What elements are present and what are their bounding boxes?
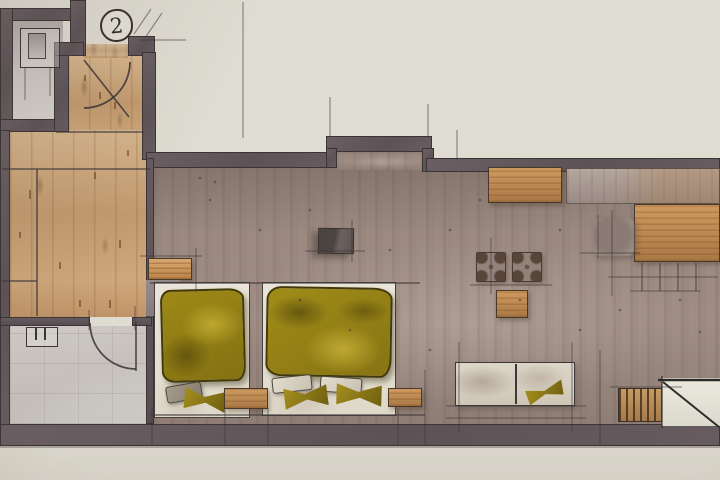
wc-left-wall <box>0 8 13 132</box>
pouf-right <box>512 252 542 282</box>
terrace-door-panel <box>662 378 720 426</box>
bathroom-wall-right <box>132 317 152 326</box>
nightstand-center <box>224 388 268 409</box>
desk-table <box>634 204 720 262</box>
side-table <box>318 228 354 255</box>
niche-top-wall <box>326 136 432 152</box>
desk-chair <box>594 218 634 256</box>
shower-fixture-inner <box>28 33 46 59</box>
room-number-text: 2 <box>109 13 124 38</box>
side-block <box>496 290 528 318</box>
bed-single-duvet <box>160 288 246 383</box>
entry-right-wall <box>142 52 156 160</box>
niche-left-jog <box>326 148 337 168</box>
toilet-fixture <box>26 327 58 347</box>
toilet-fixture-line <box>35 327 37 340</box>
wardrobe-counter <box>566 168 720 204</box>
bottom-wall <box>0 424 720 446</box>
pouf-left <box>476 252 506 282</box>
bed-double-duvet <box>265 286 393 378</box>
toilet-fixture-line <box>44 327 46 340</box>
dressing-room-floor <box>10 130 146 317</box>
nightstand-right <box>388 388 422 407</box>
bathroom-wall-left <box>0 317 90 326</box>
main-top-wall-left <box>146 152 334 168</box>
dresser-north-wall <box>488 167 562 203</box>
sofa-cushion-divider <box>515 364 517 404</box>
wall-bench <box>148 258 192 280</box>
niche-floor <box>336 150 422 170</box>
entry-door-threshold <box>84 44 128 58</box>
left-outer-wall <box>0 130 10 426</box>
floor-plan-sketch: 2 <box>0 0 720 480</box>
